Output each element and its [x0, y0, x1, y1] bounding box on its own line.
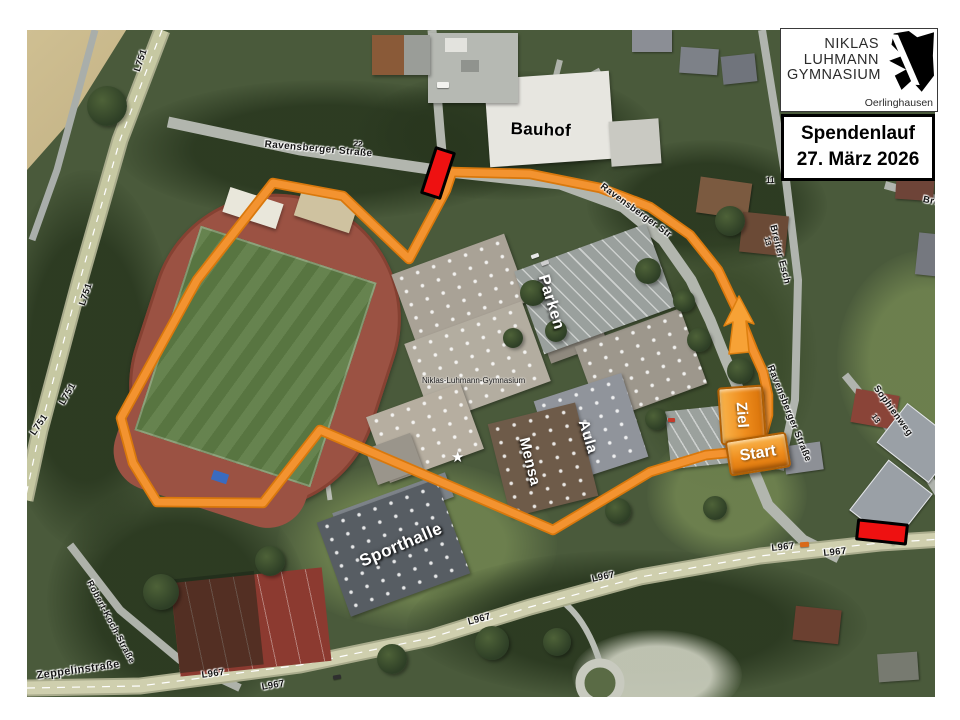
event-date: 27. März 2026 — [786, 147, 930, 173]
star-icon: ★ — [451, 448, 464, 466]
poi-bauhof: Bauhof — [510, 120, 571, 139]
school-logo-card: NIKLAS LUHMANN GYMNASIUM Oerlinghausen — [780, 28, 938, 112]
event-card: Spendenlauf 27. März 2026 — [781, 114, 935, 181]
slide: ★ Ravensberger Straße22Ravensberger StrR… — [0, 0, 960, 720]
finish-label: Ziel — [733, 402, 752, 429]
school-name-line: NIKLAS — [787, 37, 879, 53]
school-name: NIKLAS LUHMANN GYMNASIUM — [787, 37, 879, 84]
poi-school-name: Niklas-Luhmann-Gymnasium — [422, 377, 525, 385]
school-name-line: GYMNASIUM — [787, 68, 879, 84]
run-route — [121, 172, 768, 530]
school-name-line: LUHMANN — [787, 53, 879, 69]
ref-l967-c: L967 — [771, 542, 795, 554]
school-town: Oerlinghausen — [865, 97, 933, 109]
event-title: Spendenlauf — [786, 121, 930, 147]
school-logo-silhouette — [878, 31, 934, 93]
house-number-13: 13 — [762, 236, 772, 247]
ref-l967-d: L967 — [823, 547, 847, 559]
house-number-22: 22 — [353, 140, 363, 149]
house-number-11: 11 — [766, 177, 774, 185]
start-label: Start — [739, 442, 778, 465]
